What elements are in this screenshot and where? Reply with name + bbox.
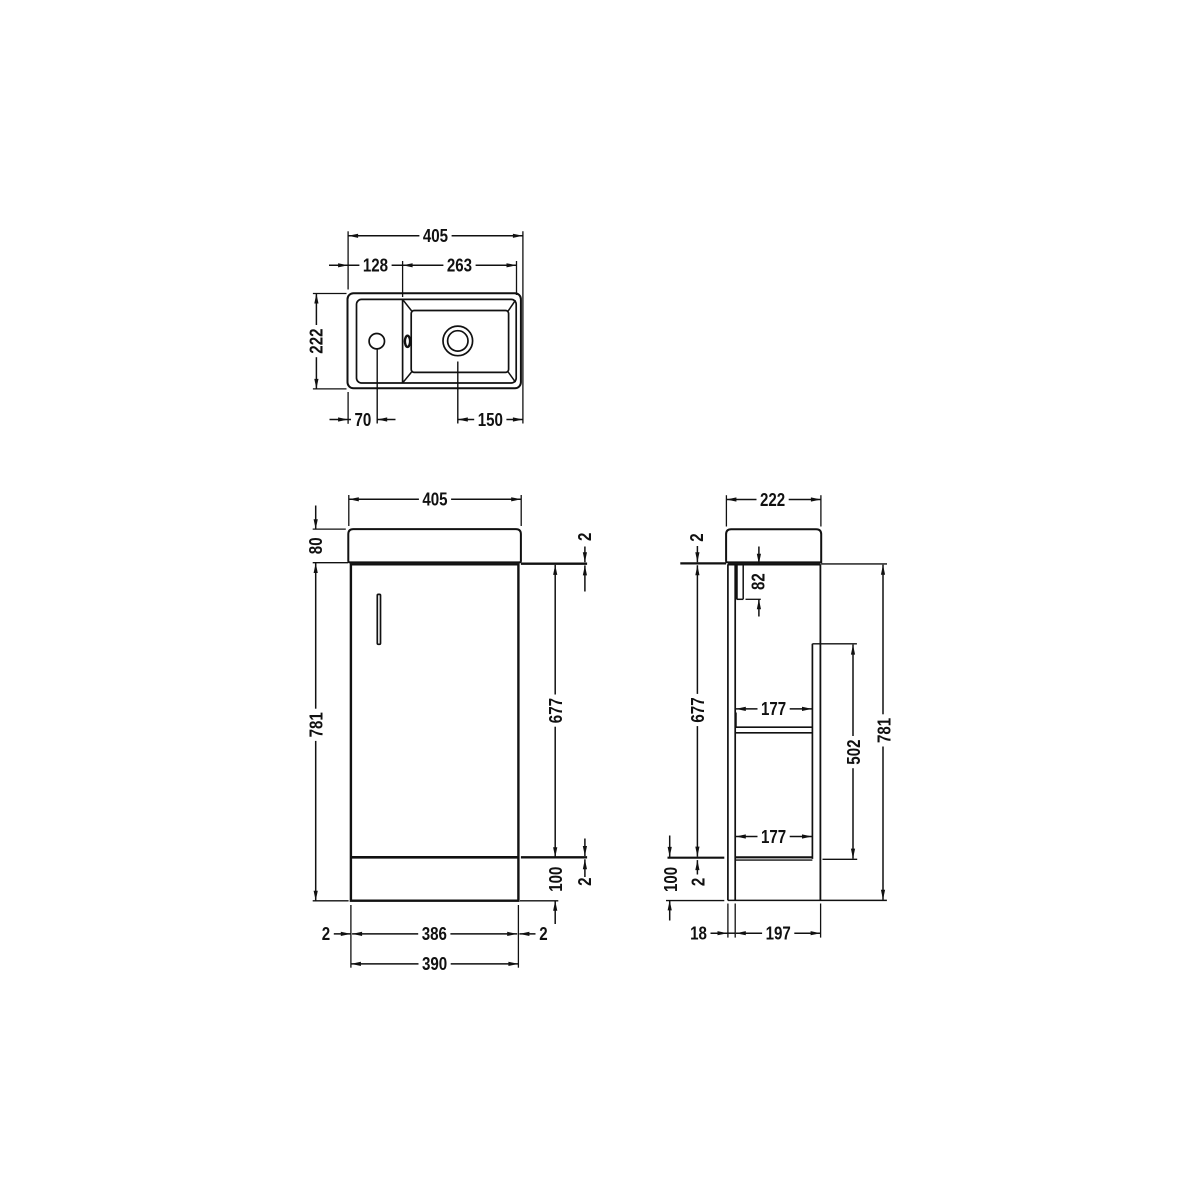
svg-text:2: 2 (575, 533, 595, 541)
svg-text:70: 70 (355, 410, 372, 430)
svg-text:222: 222 (760, 490, 785, 510)
svg-text:390: 390 (422, 954, 447, 974)
svg-text:82: 82 (749, 573, 769, 590)
svg-text:263: 263 (447, 256, 472, 276)
svg-text:2: 2 (322, 924, 330, 944)
svg-text:197: 197 (766, 924, 791, 944)
svg-text:2: 2 (687, 533, 707, 541)
svg-text:128: 128 (363, 256, 388, 276)
svg-text:405: 405 (423, 226, 448, 246)
svg-text:18: 18 (690, 924, 707, 944)
svg-text:80: 80 (306, 537, 326, 554)
svg-text:677: 677 (546, 698, 566, 723)
svg-text:100: 100 (546, 867, 566, 892)
svg-text:2: 2 (688, 878, 708, 886)
svg-text:222: 222 (306, 329, 326, 354)
svg-text:386: 386 (422, 924, 447, 944)
svg-text:677: 677 (688, 697, 708, 722)
svg-text:781: 781 (306, 712, 326, 737)
svg-text:177: 177 (761, 827, 786, 847)
svg-text:177: 177 (761, 699, 786, 719)
svg-text:100: 100 (661, 867, 681, 892)
svg-text:405: 405 (422, 490, 447, 510)
svg-text:502: 502 (844, 740, 864, 765)
svg-text:150: 150 (478, 410, 503, 430)
svg-text:781: 781 (875, 718, 895, 743)
svg-text:2: 2 (575, 878, 595, 886)
svg-text:2: 2 (539, 924, 547, 944)
